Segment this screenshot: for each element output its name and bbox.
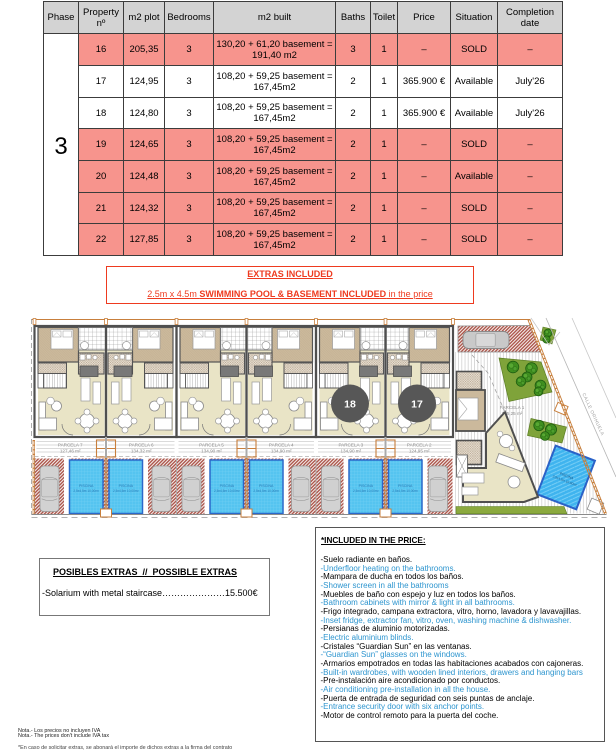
svg-text:18: 18 bbox=[344, 399, 356, 411]
svg-text:134,90 m²: 134,90 m² bbox=[201, 449, 222, 454]
svg-text:127,46 m²: 127,46 m² bbox=[60, 449, 81, 454]
svg-text:134,90 m²: 134,90 m² bbox=[340, 449, 361, 454]
svg-text:PARCELA 5: PARCELA 5 bbox=[199, 443, 224, 448]
svg-text:2,5x4,5m 10,00m²: 2,5x4,5m 10,00m² bbox=[253, 489, 279, 493]
svg-text:PARCELA 3: PARCELA 3 bbox=[338, 443, 363, 448]
svg-text:PISCINA: PISCINA bbox=[398, 484, 413, 488]
svg-text:CALLE ORIHUELA: CALLE ORIHUELA bbox=[581, 392, 605, 436]
svg-text:134,32 m²: 134,32 m² bbox=[131, 449, 152, 454]
svg-text:PISCINA: PISCINA bbox=[119, 484, 134, 488]
svg-text:PISCINA: PISCINA bbox=[259, 484, 274, 488]
svg-text:2,5x4,5m 10,00m²: 2,5x4,5m 10,00m² bbox=[73, 489, 99, 493]
svg-text:PARCELA 4: PARCELA 4 bbox=[269, 443, 294, 448]
svg-text:PARCELA 7: PARCELA 7 bbox=[58, 443, 83, 448]
svg-text:2,5x4,5m 10,00m²: 2,5x4,5m 10,00m² bbox=[214, 489, 240, 493]
svg-text:PARCELA 2: PARCELA 2 bbox=[407, 443, 432, 448]
svg-text:17: 17 bbox=[411, 399, 423, 411]
svg-text:2,5x4,5m 10,00m²: 2,5x4,5m 10,00m² bbox=[113, 489, 139, 493]
svg-text:2,5x4,5m 10,00m²: 2,5x4,5m 10,00m² bbox=[392, 489, 418, 493]
svg-text:PISCINA: PISCINA bbox=[220, 484, 235, 488]
svg-text:124,95 m²: 124,95 m² bbox=[409, 449, 430, 454]
svg-text:PARCELA 6: PARCELA 6 bbox=[129, 443, 154, 448]
svg-text:2,5x4,5m 10,00m²: 2,5x4,5m 10,00m² bbox=[353, 489, 379, 493]
svg-text:PISCINA: PISCINA bbox=[79, 484, 94, 488]
svg-text:134,90 m²: 134,90 m² bbox=[271, 449, 292, 454]
svg-text:PISCINA: PISCINA bbox=[359, 484, 374, 488]
